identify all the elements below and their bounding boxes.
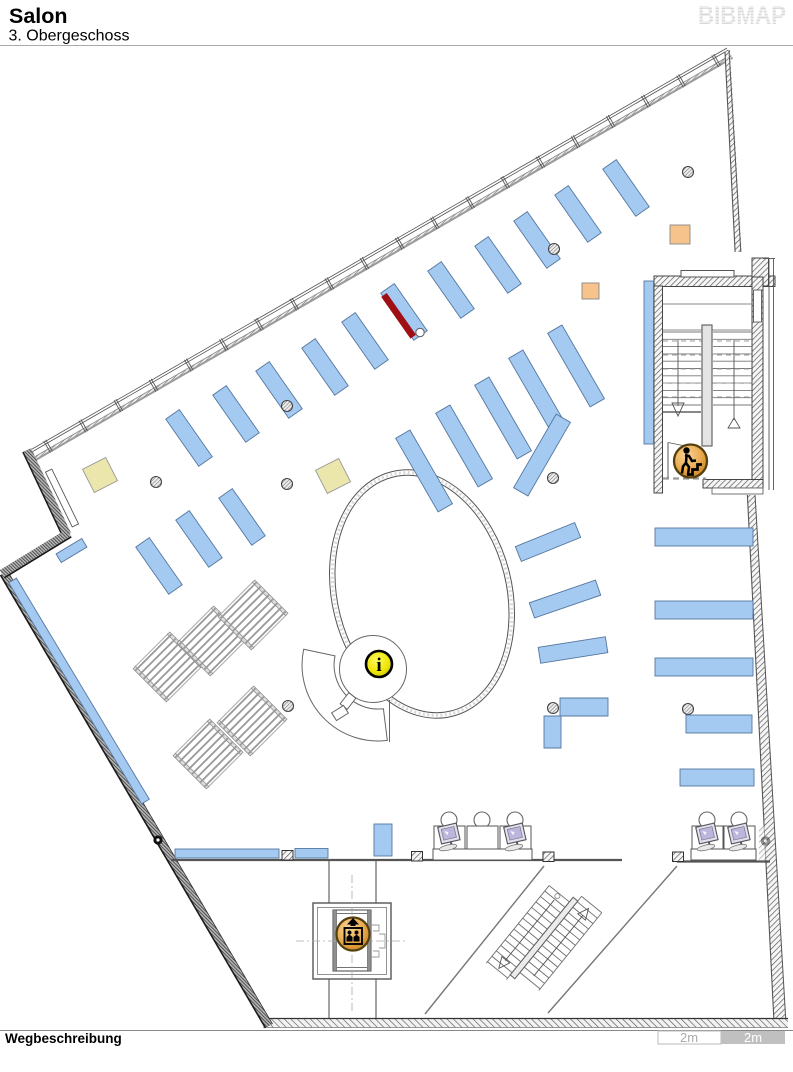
- svg-text:Wegbeschreibung: Wegbeschreibung: [5, 1031, 122, 1046]
- svg-text:i: i: [376, 655, 381, 676]
- svg-text:2m: 2m: [744, 1030, 762, 1045]
- svg-text:Salon: Salon: [9, 4, 68, 28]
- svg-text:2m: 2m: [680, 1030, 698, 1045]
- svg-text:BIBMAP: BIBMAP: [698, 0, 786, 30]
- svg-text:3. Obergeschoss: 3. Obergeschoss: [9, 28, 130, 45]
